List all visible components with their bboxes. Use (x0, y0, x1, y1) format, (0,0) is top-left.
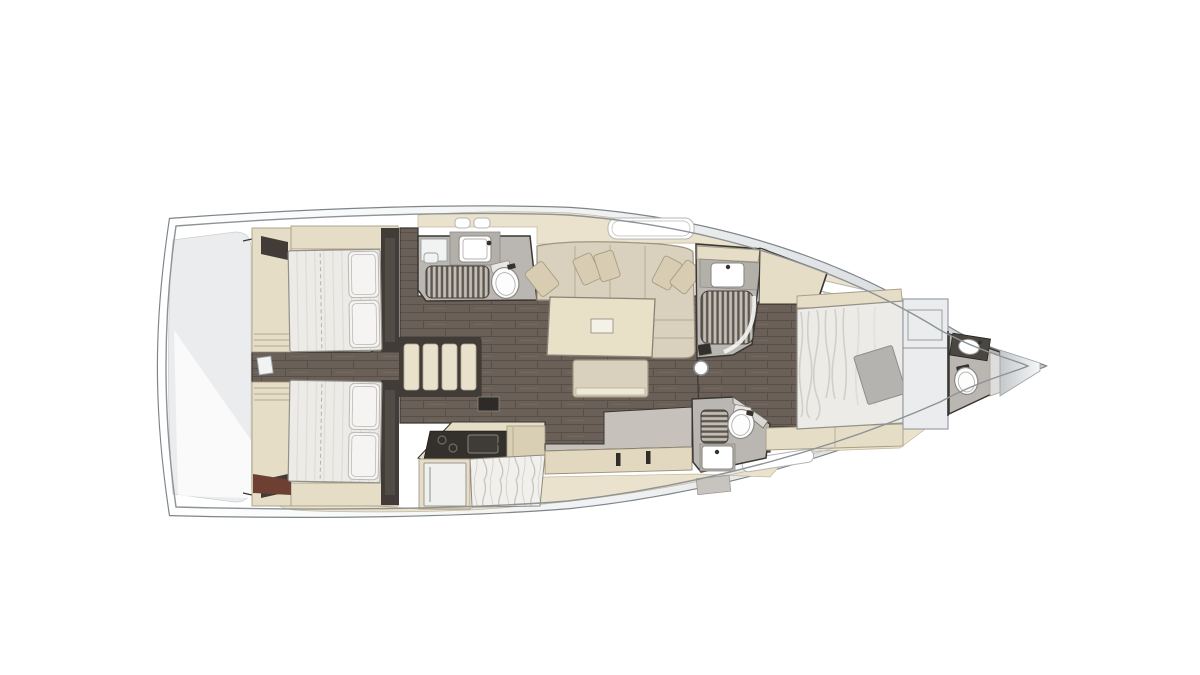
aft-cabin-port (252, 226, 399, 352)
faucet-icon (726, 265, 730, 269)
yacht-floor-plan-canvas (0, 0, 1200, 675)
stair-step-3 (442, 344, 457, 390)
faucet-icon (715, 450, 719, 454)
drawer-handle (646, 451, 651, 464)
pillow (348, 251, 379, 298)
shower-fitting (697, 343, 712, 356)
shower-grate (701, 410, 728, 443)
forward-shower (696, 244, 762, 358)
deck-hatch-small-1 (455, 218, 470, 228)
pillow (348, 432, 379, 480)
stair-step-1 (404, 344, 419, 390)
pillow (349, 383, 380, 430)
double-bed (288, 380, 382, 483)
companionway (399, 337, 481, 397)
galley-sink (468, 435, 498, 453)
cabin-door (385, 390, 395, 495)
drawer-handle (616, 453, 621, 466)
corridor-hatch (257, 356, 273, 375)
marble-counter (470, 455, 545, 507)
mast (694, 361, 708, 375)
double-bed (288, 249, 382, 352)
deck-hatch-small-2 (474, 218, 490, 228)
cabin-door (385, 238, 395, 342)
stair-step-4 (461, 344, 476, 390)
stair-step-2 (423, 344, 438, 390)
bed-footboard (766, 424, 903, 450)
faucet-icon (487, 241, 492, 246)
shower-grate (426, 266, 489, 298)
pillow (349, 300, 380, 348)
ottoman-base (576, 388, 645, 395)
stern-platform (169, 232, 253, 502)
table-inlay (591, 319, 613, 333)
hanging-locker (903, 299, 948, 429)
floor-fitting (478, 397, 499, 411)
shelf-box (424, 253, 438, 263)
bow-head (949, 333, 1040, 414)
aft-cabin-starboard (252, 380, 399, 506)
anchor-locker-wedge (1000, 350, 1040, 396)
galley-faucet-icon (498, 442, 503, 447)
aft-head (418, 232, 537, 301)
sink (702, 446, 733, 469)
yacht-floor-plan (0, 0, 1200, 675)
